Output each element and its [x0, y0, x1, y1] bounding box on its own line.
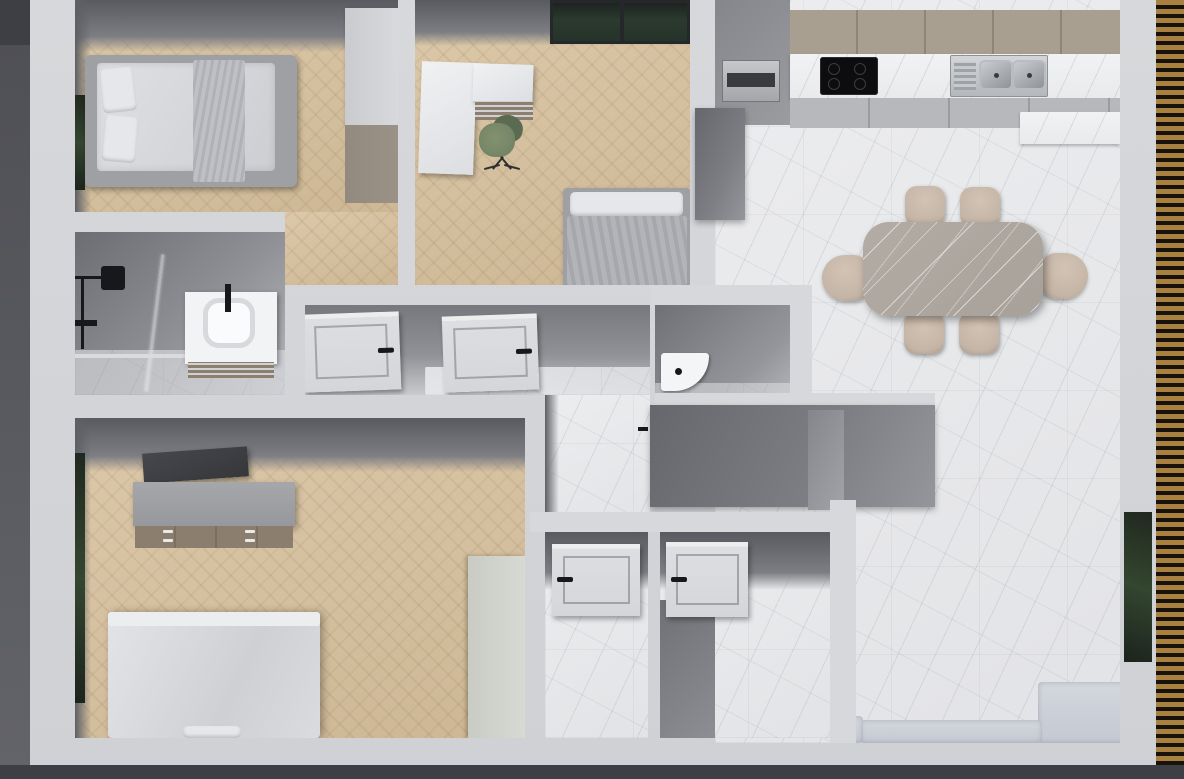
office-chair-leg [504, 164, 520, 170]
dresser-handle [245, 539, 255, 542]
vanity-drawer [188, 362, 274, 378]
master-bed-duvet [108, 612, 320, 738]
shower-arm [75, 276, 103, 279]
storage-b-closet-nook [660, 600, 715, 738]
room-master-bedroom [75, 418, 525, 738]
exterior-ground-top-left [0, 0, 30, 45]
storage-a-door [552, 544, 640, 616]
shower-riser [81, 279, 84, 349]
basin-faucet [225, 284, 231, 312]
room-storage-b [660, 532, 830, 738]
door-handle [516, 348, 532, 354]
bedroom1-entry-floor [285, 212, 398, 285]
room-bedroom-1 [75, 0, 398, 212]
dining-chair-bottom-2 [959, 312, 999, 354]
kitchen-upper-cabinets [790, 10, 1120, 54]
office-chair [477, 115, 525, 177]
oven-glass [727, 73, 776, 87]
dining-chair-bottom-1 [904, 312, 944, 354]
corridor-door-handle [638, 427, 648, 431]
room-hallway [305, 305, 650, 395]
towel-bar [75, 354, 195, 358]
dresser-handle [163, 530, 173, 533]
living-east-window [1124, 512, 1152, 662]
dresser-handle [163, 539, 173, 542]
sink-bowl-right [1012, 60, 1046, 90]
oven [722, 60, 780, 102]
wc-east-wall [790, 285, 812, 410]
sink-bowl-left [979, 60, 1013, 90]
floor-plan-scene [0, 0, 1184, 779]
wood-slat-deck [1156, 0, 1184, 779]
office-desk-top [472, 63, 533, 103]
hallway-door-2 [442, 313, 540, 392]
living-partition-pillar [808, 410, 844, 510]
office-chair-seat [479, 123, 515, 157]
sofa-chaise-back [1038, 682, 1120, 743]
door-handle [557, 577, 573, 582]
storage-north-wall [530, 512, 856, 532]
sofa-seat [860, 720, 1042, 743]
master-west-window [75, 453, 85, 703]
bedroom1-wardrobe-lower [345, 125, 398, 203]
bedroom1-west-window [75, 95, 85, 190]
sink-drainboard [954, 62, 976, 90]
office-desk-return [418, 61, 477, 175]
bedroom1-pillow-1 [99, 66, 137, 113]
bedroom1-pillow-2 [101, 115, 139, 164]
room-storage-a [545, 532, 648, 738]
dresser-handle [245, 530, 255, 533]
room-wc [655, 305, 790, 400]
window-mullion [620, 3, 624, 41]
master-bed-headband [108, 612, 320, 626]
kitchen-double-sink [950, 55, 1048, 97]
exterior-ground-left [0, 0, 30, 779]
induction-cooktop [820, 57, 878, 95]
master-dresser-front [135, 526, 293, 548]
bedroom1-throw-blanket [193, 60, 245, 182]
master-dresser-top [133, 482, 295, 526]
kitchen-west-wall-face [695, 108, 745, 220]
office-bed-blanket [567, 216, 687, 285]
master-bed-bench [183, 726, 241, 738]
storage-east-wall [830, 500, 856, 743]
kitchen-counter-return [1020, 112, 1120, 144]
master-wardrobe [468, 556, 525, 738]
bedroom1-wardrobe-upper [345, 8, 398, 125]
door-handle [378, 347, 394, 353]
dining-chair-right [1042, 253, 1088, 299]
dining-chair-top-1 [905, 186, 945, 226]
exterior-ground-bottom [0, 765, 1184, 779]
dining-chair-left [822, 255, 868, 301]
office-bed-pillows [570, 192, 683, 216]
master-tv-panel [142, 446, 249, 483]
room-office-bedroom [415, 0, 690, 285]
sink-drain [675, 368, 682, 375]
wc-north-wall [650, 285, 812, 305]
shower-head [101, 266, 125, 290]
storage-b-door [666, 542, 748, 617]
dining-table [863, 222, 1043, 316]
dining-chair-top-2 [960, 187, 1000, 227]
shower-valve [75, 320, 97, 326]
door-handle [671, 577, 687, 582]
living-partition-wall-face [650, 405, 935, 507]
room-bathroom [75, 232, 285, 395]
hallway-door-1 [305, 311, 401, 392]
office-north-window [550, 0, 690, 44]
